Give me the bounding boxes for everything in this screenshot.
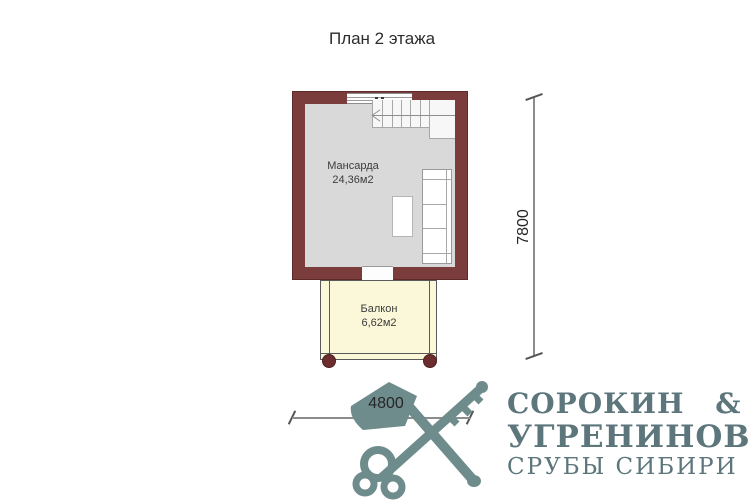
balcony-wall-line — [329, 281, 330, 359]
sofa — [422, 169, 452, 264]
window-center-mark — [375, 97, 378, 99]
dimension-height-label: 7800 — [515, 204, 533, 250]
logo-line-2: УГРЕНИНОВ — [507, 420, 753, 454]
balcony-area: 6,62м2 — [339, 316, 419, 330]
logo-line-3: СРУБЫ СИБИРИ — [507, 454, 753, 481]
dimension-width-label: 4800 — [362, 395, 410, 413]
stair-tread-line — [392, 100, 393, 128]
sofa-cushion-line — [423, 228, 446, 229]
table — [392, 196, 413, 237]
balcony-label: Балкон 6,62м2 — [339, 302, 419, 330]
staircase — [372, 100, 429, 128]
logo-line-1: СОРОКИН & — [507, 388, 753, 420]
stair-tread-line — [401, 100, 402, 128]
balcony-wall-line — [429, 281, 430, 359]
stair-tread-line — [410, 100, 411, 128]
balcony-post-right — [423, 354, 437, 368]
stair-landing — [429, 100, 455, 139]
logo-text: СОРОКИН & УГРЕНИНОВ СРУБЫ СИБИРИ — [507, 388, 753, 481]
page-title: План 2 этажа — [277, 29, 487, 49]
room-label: Мансарда 24,36м2 — [312, 159, 394, 187]
stair-tread-line — [382, 100, 383, 128]
balcony-door-opening — [362, 266, 393, 281]
room-name: Мансарда — [312, 159, 394, 173]
room-area: 24,36м2 — [312, 173, 394, 187]
window-center-mark — [381, 97, 384, 99]
balcony-rail-line — [321, 353, 436, 354]
window-glass-line — [347, 97, 412, 98]
balcony-post-left — [322, 354, 336, 368]
balcony-name: Балкон — [339, 302, 419, 316]
dimension-line-vertical — [533, 97, 535, 356]
sofa-backrest — [446, 170, 447, 263]
stair-tread-line — [420, 100, 421, 128]
floor-plan-page: План 2 этажа Мансарда 24,36м2 — [0, 0, 753, 502]
sofa-cushion-line — [423, 204, 446, 205]
stair-direction-line — [372, 115, 455, 116]
